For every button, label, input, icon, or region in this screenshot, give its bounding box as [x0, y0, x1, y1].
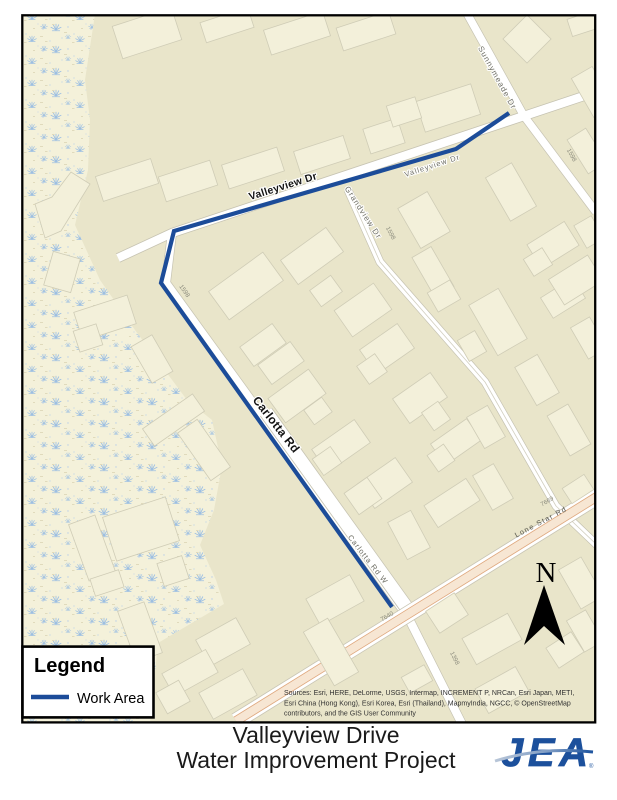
svg-text:Valleyview Drive: Valleyview Drive	[232, 722, 399, 748]
svg-text:Esri China (Hong Kong), Esri K: Esri China (Hong Kong), Esri Korea, Esri…	[284, 699, 571, 707]
svg-text:N: N	[536, 557, 557, 589]
svg-text:Legend: Legend	[34, 655, 105, 677]
svg-text:Work Area: Work Area	[77, 691, 145, 707]
svg-text:®: ®	[589, 763, 594, 770]
svg-text:Sources: Esri, HERE, DeLorme,: Sources: Esri, HERE, DeLorme, USGS, Inte…	[284, 690, 574, 697]
svg-text:Water Improvement Project: Water Improvement Project	[176, 747, 456, 773]
svg-text:contributors, and the GIS User: contributors, and the GIS User Community	[284, 711, 416, 718]
